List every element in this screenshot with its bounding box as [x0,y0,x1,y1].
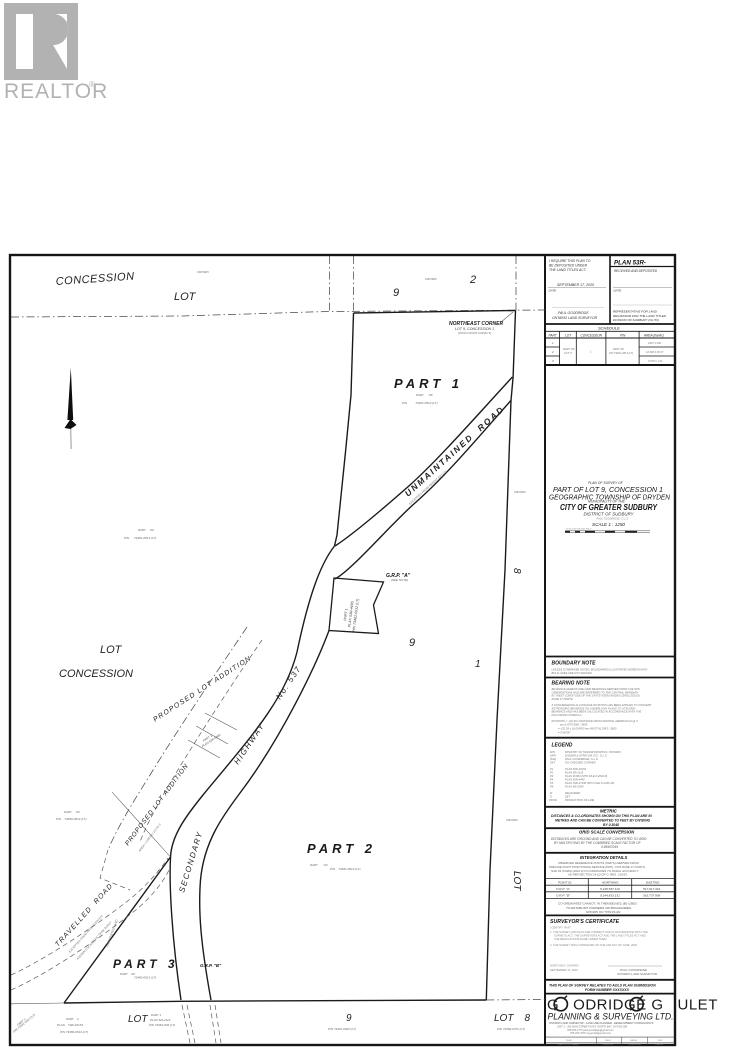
svg-text:THE LAND TITLES ACT.: THE LAND TITLES ACT. [549,268,587,272]
svg-text:CROWN: CROWN [425,277,437,281]
svg-text:EASTING: EASTING [646,880,660,884]
svg-text:PLAN 53R-: PLAN 53R- [614,260,646,267]
svg-text:POINT ID: POINT ID [558,880,572,884]
svg-text:PLAN SR-2119: PLAN SR-2119 [565,771,584,775]
svg-text:5,144,833.131: 5,144,833.131 [600,894,620,898]
svg-text:PART OF: PART OF [138,528,154,532]
svg-text:ONTARIO LAND SURVEYOR: ONTARIO LAND SURVEYOR [552,316,598,320]
svg-text:BY MULTIPLYING BY THE COMBINED: BY MULTIPLYING BY THE COMBINED SCALE FAC… [554,841,642,845]
svg-text:2. THE SURVEY WAS COMPLETED ON: 2. THE SURVEY WAS COMPLETED ON THE 24th … [549,943,638,947]
svg-text:PAUL GOODRIDGE, O.L.S.: PAUL GOODRIDGE, O.L.S. [565,757,599,761]
svg-text:CONCESSION: CONCESSION [581,334,603,338]
svg-text:P4: P4 [550,778,554,782]
svg-text:0.570 ± 1.41: 0.570 ± 1.41 [648,359,663,363]
svg-text:(842): (842) [550,757,556,761]
svg-text:PLAN: PLAN [566,1039,572,1042]
svg-text:I REQUIRE THIS PLAN TO: I REQUIRE THIS PLAN TO [549,259,591,263]
svg-text:ONTARIO LAND SURVEYOR: ONTARIO LAND SURVEYOR [617,972,658,976]
svg-text:PART 2: PART 2 [66,1017,79,1021]
svg-text:ONTARIO LAND SURVEYOR - LAND U: ONTARIO LAND SURVEYOR - LAND USE PLANNER… [549,1021,654,1025]
svg-text:PIN 73480-0813 (LT): PIN 73480-0813 (LT) [56,817,87,821]
svg-text:1. THE SURVEY AND PLAN ARE COR: 1. THE SURVEY AND PLAN ARE CORRECT AND I… [550,930,648,934]
svg-text:PIN 73481-0813 (LT): PIN 73481-0813 (LT) [402,401,438,405]
svg-text:LOT: LOT [128,1014,148,1025]
svg-text:PIN 73481-0813 (LT): PIN 73481-0813 (LT) [330,867,361,871]
svg-text:516,737.908: 516,737.908 [643,894,660,898]
svg-text:BOLD LINES ARE NOT FENCED: BOLD LINES ARE NOT FENCED [552,671,592,675]
svg-text:DISTRICT OF SUDBURY: DISTRICT OF SUDBURY [584,512,635,517]
svg-text:SURVEYS ACT, THE SURVEYORS ACT: SURVEYS ACT, THE SURVEYORS ACT AND THE L… [554,933,646,937]
svg-text:LOT: LOT [511,871,522,891]
svg-text:2415 ± 830: 2415 ± 830 [647,341,662,345]
svg-text:CROWN: CROWN [506,818,518,822]
svg-text:P1: P1 [550,767,554,771]
svg-text:PIN 73480-0472 (LT): PIN 73480-0472 (LT) [497,1027,525,1031]
svg-text:9: 9 [346,1013,352,1024]
svg-text:0.99907049: 0.99907049 [601,845,618,849]
svg-text:SEPTEMBER 11, 2020: SEPTEMBER 11, 2020 [550,968,578,972]
svg-text:NORTHING: NORTHING [602,880,619,884]
svg-text:PLANNING & SURVEYING LTD.: PLANNING & SURVEYING LTD. [548,1011,674,1021]
svg-text:PROD: PROD [549,798,557,802]
svg-text:LOT: LOT [100,644,123,656]
svg-text:PIN: PIN [620,334,626,338]
svg-text:PLAN 53R-17348 (MTO FILE P-243: PLAN 53R-17348 (MTO FILE P-2435-16) [565,781,614,785]
svg-text:PLAN SR-2119: PLAN SR-2119 [150,1018,171,1022]
svg-text:O.R.P. "B": O.R.P. "B" [556,894,571,898]
svg-text:S: S [550,795,552,799]
svg-text:SEPTEMBER 17, 2020: SEPTEMBER 17, 2020 [557,283,594,287]
svg-text:PIN 73481-0813 (LT): PIN 73481-0813 (LT) [124,536,156,540]
svg-text:DIVIDER & STRATUM LTD., O.L.S.: DIVIDER & STRATUM LTD., O.L.S. [565,754,608,758]
svg-text:FOLLOWING FORMULA: FOLLOWING FORMULA [552,713,582,717]
svg-text:= 0°08'36": = 0°08'36" [558,730,571,734]
svg-text:DATED: DATED [630,1039,638,1042]
svg-text:DIVISION OF SUDBURY (No.53): DIVISION OF SUDBURY (No.53) [613,318,659,322]
svg-text:NORTH BAY, ONTARIO: NORTH BAY, ONTARIO [550,964,580,968]
svg-text:9: 9 [393,287,399,299]
svg-text:2: 2 [551,350,554,354]
svg-text:PLAN W-804 (MTO FILE P-2632-8): PLAN W-804 (MTO FILE P-2632-8) [565,774,607,778]
svg-text:G.R.P. "B": G.R.P. "B" [200,963,222,968]
svg-text:50 25 0 50: 50 25 0 50 100 150 250 m [566,529,592,531]
svg-text:PIN 73481-0813 (LT): PIN 73481-0813 (LT) [609,351,633,355]
svg-text:PART 1: PART 1 [151,1013,162,1017]
svg-text:FORM NUMBER XXXXXXX: FORM NUMBER XXXXXXX [585,988,630,992]
svg-text:LEGEND: LEGEND [552,743,573,749]
svg-text:DATE: DATE [549,289,558,293]
svg-text:53R-XX (P2) Twynby: 53R-XX (P2) Twynby [558,1044,579,1046]
svg-text:METRIC: METRIC [600,808,618,813]
svg-text:P2: P2 [550,771,554,775]
svg-text:I CERTIFY THAT:: I CERTIFY THAT: [550,926,571,930]
svg-text:PIN 73481-846 (LT): PIN 73481-846 (LT) [149,1023,175,1027]
svg-text:73480-0813 (LT): 73480-0813 (LT) [134,976,156,980]
svg-text:BY 0.3048: BY 0.3048 [603,823,619,827]
svg-text:5,145,537.110: 5,145,537.110 [600,887,620,891]
svg-text:SRR: SRR [550,754,556,758]
svg-text:AREA (ha/Ac): AREA (ha/Ac) [643,334,664,338]
svg-text:DATE: DATE [614,289,623,293]
svg-text:PLAN SR-2040: PLAN SR-2040 [565,785,584,789]
svg-text:THE REGULATIONS MADE UNDER THE: THE REGULATIONS MADE UNDER THEM. [554,937,607,941]
svg-text:PART OF: PART OF [416,393,433,397]
svg-text:GRID SCALE CONVERSION: GRID SCALE CONVERSION [579,830,635,835]
svg-text:CROWN: CROWN [197,270,209,274]
svg-text:REF: REF [658,1040,663,1042]
svg-text:GO-CHECKED CORNER: GO-CHECKED CORNER [565,761,596,765]
svg-text:PART 1: PART 1 [394,376,463,391]
svg-text:PART OF: PART OF [310,863,328,867]
svg-text:MINISTRY OF TRANSPORTATION, ON: MINISTRY OF TRANSPORTATION, ONTARIO [565,750,622,754]
svg-text:tan (LATITUDE) / 3600: tan (LATITUDE) / 3600 [560,722,588,726]
svg-text:CONCESSION: CONCESSION [59,668,133,680]
svg-text:SKT: SKT [550,761,556,765]
svg-text:MEASURED: MEASURED [565,791,580,795]
svg-text:®: ® [89,80,95,89]
svg-text:DISTANCES & CO-ORDINATES SHOWN: DISTANCES & CO-ORDINATES SHOWN ON THIS P… [551,814,652,818]
svg-text:THIS PLAN OF SURVEY RELATES TO: THIS PLAN OF SURVEY RELATES TO AOLS PLAN… [549,983,656,987]
svg-text:PIN 73481-0025 (LT): PIN 73481-0025 (LT) [328,1027,356,1031]
svg-text:PART: PART [549,334,558,338]
svg-text:10-04-0705: 10-04-0705 [602,1043,614,1046]
svg-text:SCHEDULE: SCHEDULE [598,326,620,331]
svg-text:= -(32.39 x 18.034553 tan (46°: = -(32.39 x 18.034553 tan (46°27'41.296"… [558,727,617,731]
svg-text:RECEIVED AND DEPOSITED: RECEIVED AND DEPOSITED [614,269,658,273]
svg-text:O.R.P. "A": O.R.P. "A" [556,887,571,891]
svg-text:SET: SET [565,795,571,799]
svg-text:517,017.316: 517,017.316 [643,887,660,891]
svg-text:P5: P5 [550,781,554,785]
svg-text:LOT: LOT [174,291,197,303]
svg-text:705-493-7678 roy.goulet@gmail.: 705-493-7678 roy.goulet@gmail.com [570,1032,611,1035]
svg-text:(FROM CROWN SURVEYS): (FROM CROWN SURVEYS) [458,331,491,335]
svg-text:P6: P6 [550,785,554,789]
svg-text:9: 9 [409,637,415,649]
svg-text:FIELD: FIELD [605,1040,612,1042]
svg-text:METRES AND CAN BE CONVERTED TO: METRES AND CAN BE CONVERTED TO FEET BY D… [555,819,651,823]
svg-text:PIN 73480-0813 (LT): PIN 73480-0813 (LT) [60,1030,88,1034]
svg-text:2: 2 [469,274,476,286]
svg-text:BEARING NOTE: BEARING NOTE [552,681,591,687]
svg-text:BE DEPOSITED UNDER: BE DEPOSITED UNDER [549,264,588,268]
svg-text:PART 3: PART 3 [113,957,179,971]
svg-text:1006-20: 1006-20 [655,1044,664,1046]
svg-text:PRODUCTION OF LINE: PRODUCTION OF LINE [565,798,594,802]
svg-text:(JUNE-2020): (JUNE-2020) [628,1044,641,1046]
svg-text:PLAN 53R-20154: PLAN 53R-20154 [565,767,587,771]
svg-text:LOT 9: LOT 9 [564,351,572,355]
svg-text:PART 2: PART 2 [307,841,376,856]
svg-text:INTEGRATION DETAILS: INTEGRATION DETAILS [580,855,628,860]
svg-text:P3: P3 [550,774,554,778]
svg-text:18.268 ± 45.67: 18.268 ± 45.67 [646,350,664,354]
svg-text:PART OF: PART OF [613,347,624,351]
svg-text:PLAN 53R-4495: PLAN 53R-4495 [565,778,585,782]
svg-text:LOT 9, CONCESSION 1: LOT 9, CONCESSION 1 [455,327,494,331]
svg-text:SURVEYOR'S CERTIFICATE: SURVEYOR'S CERTIFICATE [550,919,620,925]
svg-text:LOT: LOT [565,334,572,338]
svg-text:BOUNDARY NOTE: BOUNDARY NOTE [552,661,597,667]
svg-text:UNLESS OTHERWISE NOTED, BOUNDA: UNLESS OTHERWISE NOTED, BOUNDARIES ILLUS… [552,668,648,672]
svg-text:PART OF: PART OF [64,810,80,814]
svg-text:8: 8 [511,568,522,574]
svg-text:CROWN: CROWN [514,490,526,494]
svg-text:PAUL GOODRIDGE, O.L.S.: PAUL GOODRIDGE, O.L.S. [597,517,629,521]
svg-text:(SEE NOTE): (SEE NOTE) [391,578,408,582]
svg-text:SCALE 1 : 1250: SCALE 1 : 1250 [592,522,625,527]
svg-text:LOT 8: LOT 8 [494,1013,531,1024]
svg-text:SHOWN ON THIS PLAN: SHOWN ON THIS PLAN [586,910,621,914]
svg-text:ZONE 17 NORTH: ZONE 17 NORTH [551,697,574,701]
svg-text:PAUL GOODRIDGE: PAUL GOODRIDGE [558,311,589,315]
svg-text:1: 1 [475,659,481,670]
svg-text:PLAN 53R-20154: PLAN 53R-20154 [57,1023,83,1027]
svg-text:AS PER SECTION 14 (2) OF O. RE: AS PER SECTION 14 (2) OF O. REG. 216/10. [567,873,628,877]
